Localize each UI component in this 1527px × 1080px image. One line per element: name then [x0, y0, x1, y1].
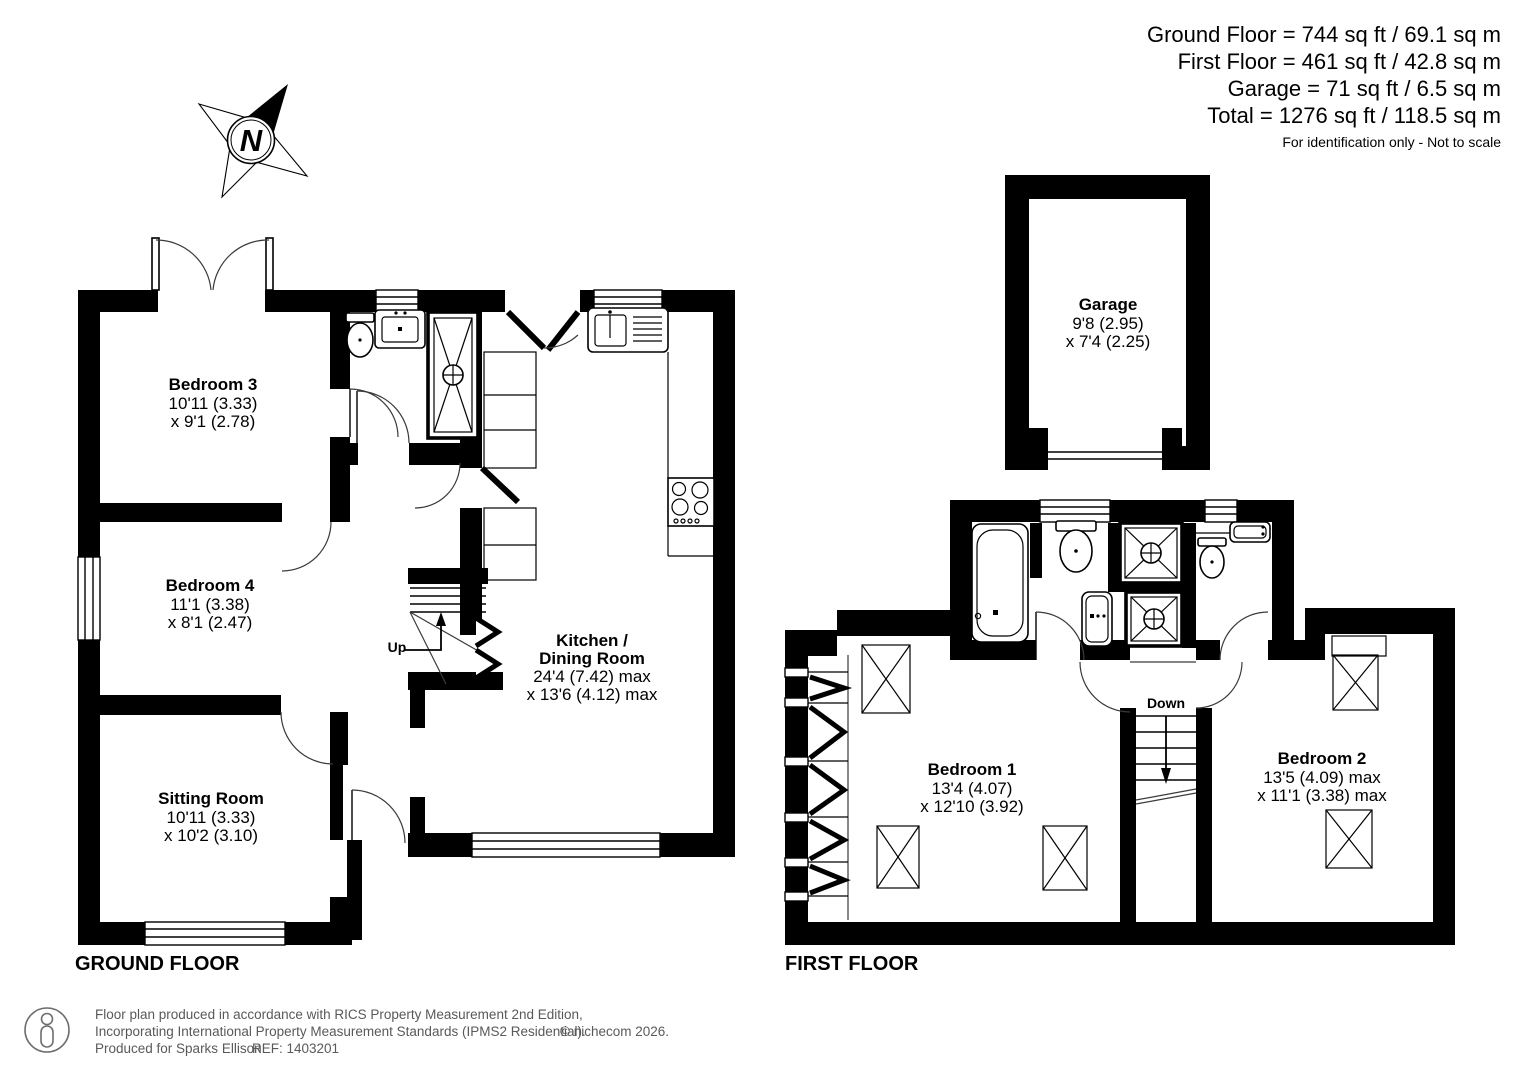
- garage-dim2: x 7'4 (2.25): [1066, 332, 1151, 351]
- shower: [1126, 592, 1182, 646]
- kitchen-dim2: x 13'6 (4.12) max: [527, 685, 658, 704]
- ground-floor-title: GROUND FLOOR: [75, 953, 240, 975]
- wardrobe-box: [862, 645, 910, 713]
- stairs-down: Down: [1136, 695, 1196, 804]
- kitchen-name-line1: Kitchen /: [556, 631, 628, 650]
- door-arc: [281, 712, 333, 764]
- kitchen-name-line2: Dining Room: [539, 649, 645, 668]
- ground-floor-plan: Up: [75, 238, 735, 975]
- door-arc: [1036, 612, 1084, 660]
- north-arrow-icon: N: [199, 84, 307, 197]
- footer-copyright: © nichecom 2026.: [560, 1024, 669, 1039]
- sink: [1082, 592, 1112, 646]
- bedroom4-name: Bedroom 4: [166, 576, 255, 595]
- bedroom2-dim2: x 11'1 (3.38) max: [1257, 786, 1387, 805]
- summary-disclaimer: For identification only - Not to scale: [1282, 134, 1501, 150]
- footer-line1: Floor plan produced in accordance with R…: [95, 1007, 583, 1022]
- kitchen-fixtures: [484, 308, 714, 580]
- bathroom-fixtures: [346, 310, 478, 438]
- floorplan-page: Ground Floor = 744 sq ft / 69.1 sq m Fir…: [0, 0, 1527, 1080]
- french-doors: [152, 238, 273, 290]
- sink: [375, 310, 425, 348]
- recess: [1332, 636, 1386, 656]
- bedroom1-name: Bedroom 1: [928, 760, 1017, 779]
- stairs-up-label: Up: [388, 639, 407, 655]
- bedroom2-name: Bedroom 2: [1278, 749, 1367, 768]
- kitchen-dim1: 24'4 (7.42) max: [533, 667, 651, 686]
- door-arc: [282, 522, 331, 571]
- window: [145, 922, 285, 945]
- first-floor-title: FIRST FLOOR: [785, 953, 919, 975]
- shower: [428, 312, 478, 438]
- bedroom3-name: Bedroom 3: [169, 375, 258, 394]
- door-arc: [352, 790, 405, 843]
- up-arrow-icon: [436, 612, 446, 626]
- ground-floor-labels: Bedroom 3 10'11 (3.33) x 9'1 (2.78) Bedr…: [75, 375, 658, 975]
- bathtub: [972, 524, 1028, 642]
- first-floor-plan: Down Garage: [785, 175, 1455, 975]
- footer-ref: REF: 1403201: [252, 1041, 339, 1056]
- stairs-down-label: Down: [1147, 695, 1185, 711]
- summary-first-floor: First Floor = 461 sq ft / 42.8 sq m: [1178, 49, 1501, 74]
- sitting-room-dim1: 10'11 (3.33): [167, 808, 256, 827]
- footer-line3: Produced for Sparks Ellison.: [95, 1041, 265, 1056]
- first-floor-bathroom-fixtures: [972, 521, 1270, 646]
- bedroom3-dim1: 10'11 (3.33): [169, 394, 258, 413]
- compass-north-label: N: [240, 123, 263, 158]
- eaves-door-chevrons: [810, 677, 844, 893]
- door-arc: [1220, 612, 1268, 660]
- summary-total: Total = 1276 sq ft / 118.5 sq m: [1207, 103, 1501, 128]
- door-arc: [357, 391, 409, 443]
- wardrobe-box: [1043, 826, 1087, 890]
- garage-name: Garage: [1079, 295, 1138, 314]
- wardrobe-box: [877, 826, 919, 888]
- bedroom2-dim1: 13'5 (4.09) max: [1263, 768, 1381, 787]
- kitchen-sink: [588, 308, 668, 352]
- summary-garage: Garage = 71 sq ft / 6.5 sq m: [1228, 76, 1501, 101]
- garage-dim1: 9'8 (2.95): [1072, 314, 1143, 333]
- toilet: [346, 313, 374, 357]
- wardrobe-box: [1326, 810, 1372, 868]
- sitting-room-name: Sitting Room: [158, 789, 264, 808]
- summary-ground-floor: Ground Floor = 744 sq ft / 69.1 sq m: [1147, 22, 1501, 47]
- bedroom1-dim1: 13'4 (4.07): [932, 779, 1013, 798]
- hob: [668, 478, 714, 526]
- floorplan-drawing: Ground Floor = 744 sq ft / 69.1 sq m Fir…: [0, 0, 1527, 1080]
- window: [376, 290, 418, 312]
- window: [1205, 500, 1237, 522]
- footer: Floor plan produced in accordance with R…: [25, 1007, 669, 1056]
- toilet: [1198, 538, 1226, 578]
- window: [1040, 500, 1110, 522]
- garage-door: [1048, 452, 1162, 459]
- window: [78, 557, 100, 640]
- bedroom4-dim1: 11'1 (3.38): [170, 595, 249, 614]
- person-icon: [25, 1008, 69, 1052]
- bedroom1-dim2: x 12'10 (3.92): [920, 797, 1023, 816]
- area-summary: Ground Floor = 744 sq ft / 69.1 sq m Fir…: [1147, 22, 1501, 150]
- down-arrow-icon: [1161, 768, 1171, 784]
- toilet: [1056, 521, 1096, 572]
- bedroom3-dim2: x 9'1 (2.78): [171, 412, 256, 431]
- shower: [1120, 523, 1182, 583]
- footer-line2: Incorporating International Property Mea…: [95, 1024, 586, 1039]
- window: [472, 833, 660, 857]
- bedroom4-dim2: x 8'1 (2.47): [168, 613, 253, 632]
- double-door-leaves: [508, 312, 578, 350]
- door-arc: [415, 463, 518, 508]
- ground-floor-windows: [78, 290, 662, 945]
- kitchen-counters: [484, 352, 713, 580]
- wardrobe-box: [1333, 655, 1378, 710]
- sitting-room-dim2: x 10'2 (3.10): [164, 826, 258, 845]
